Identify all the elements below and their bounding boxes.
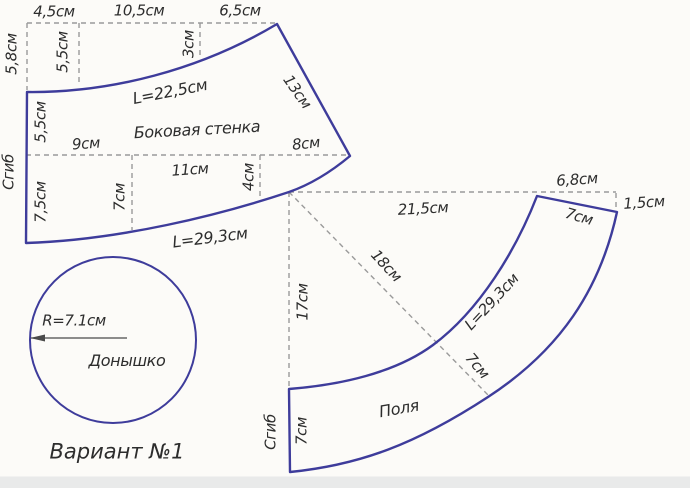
dim-curve-drop-bottom-left: 7см [113,183,128,211]
dim-mid-segment-2: 11см [171,161,209,179]
dim-brim-top-edge: 6,8см [556,171,598,189]
dim-mid-segment-3: 8см [291,135,320,153]
dim-curve-drop-mid: 3см [182,30,197,58]
fold-label-brim: Сгиб [264,414,279,450]
piece-name-crown: Донышко [89,353,166,369]
dim-curve-drop-left: 5,5см [56,31,71,72]
dim-brim-top-extent: 21,5см [397,200,448,218]
crown-circle [30,257,196,423]
dim-top-segment-3: 6,5см [219,4,260,19]
radius-arrowhead-icon [30,335,45,342]
dim-mid-segment-1: 9см [72,136,101,153]
dim-left-lower-height: 7,5см [34,181,49,222]
brim-outline [289,196,617,472]
dim-top-segment-1: 4,5см [33,5,74,20]
sewing-pattern-diagram: 4,5см 10,5см 6,5см 5,8см 5,5см 3см Сгиб … [0,0,690,488]
radius-dimension [30,335,127,342]
photo-edge-strip [0,476,690,488]
dim-top-segment-2: 10,5см [114,4,165,19]
dim-brim-fold-edge-width: 7см [295,417,310,445]
dim-crown-radius: R=7.1см [42,314,106,329]
fold-label-side-wall: Сгиб [2,154,17,190]
variant-title: Вариант №1 [50,442,185,463]
dim-curve-drop-bottom-right: 4см [242,163,257,191]
dim-brim-corner-drop: 1,5см [623,194,665,212]
dim-left-upper-height: 5,5см [34,101,49,142]
dim-left-offset: 5,8см [5,33,20,74]
dim-line-brim-diagonal [289,192,488,395]
pattern-linework [0,0,690,488]
dim-brim-vertical-radius: 17см [296,283,311,320]
